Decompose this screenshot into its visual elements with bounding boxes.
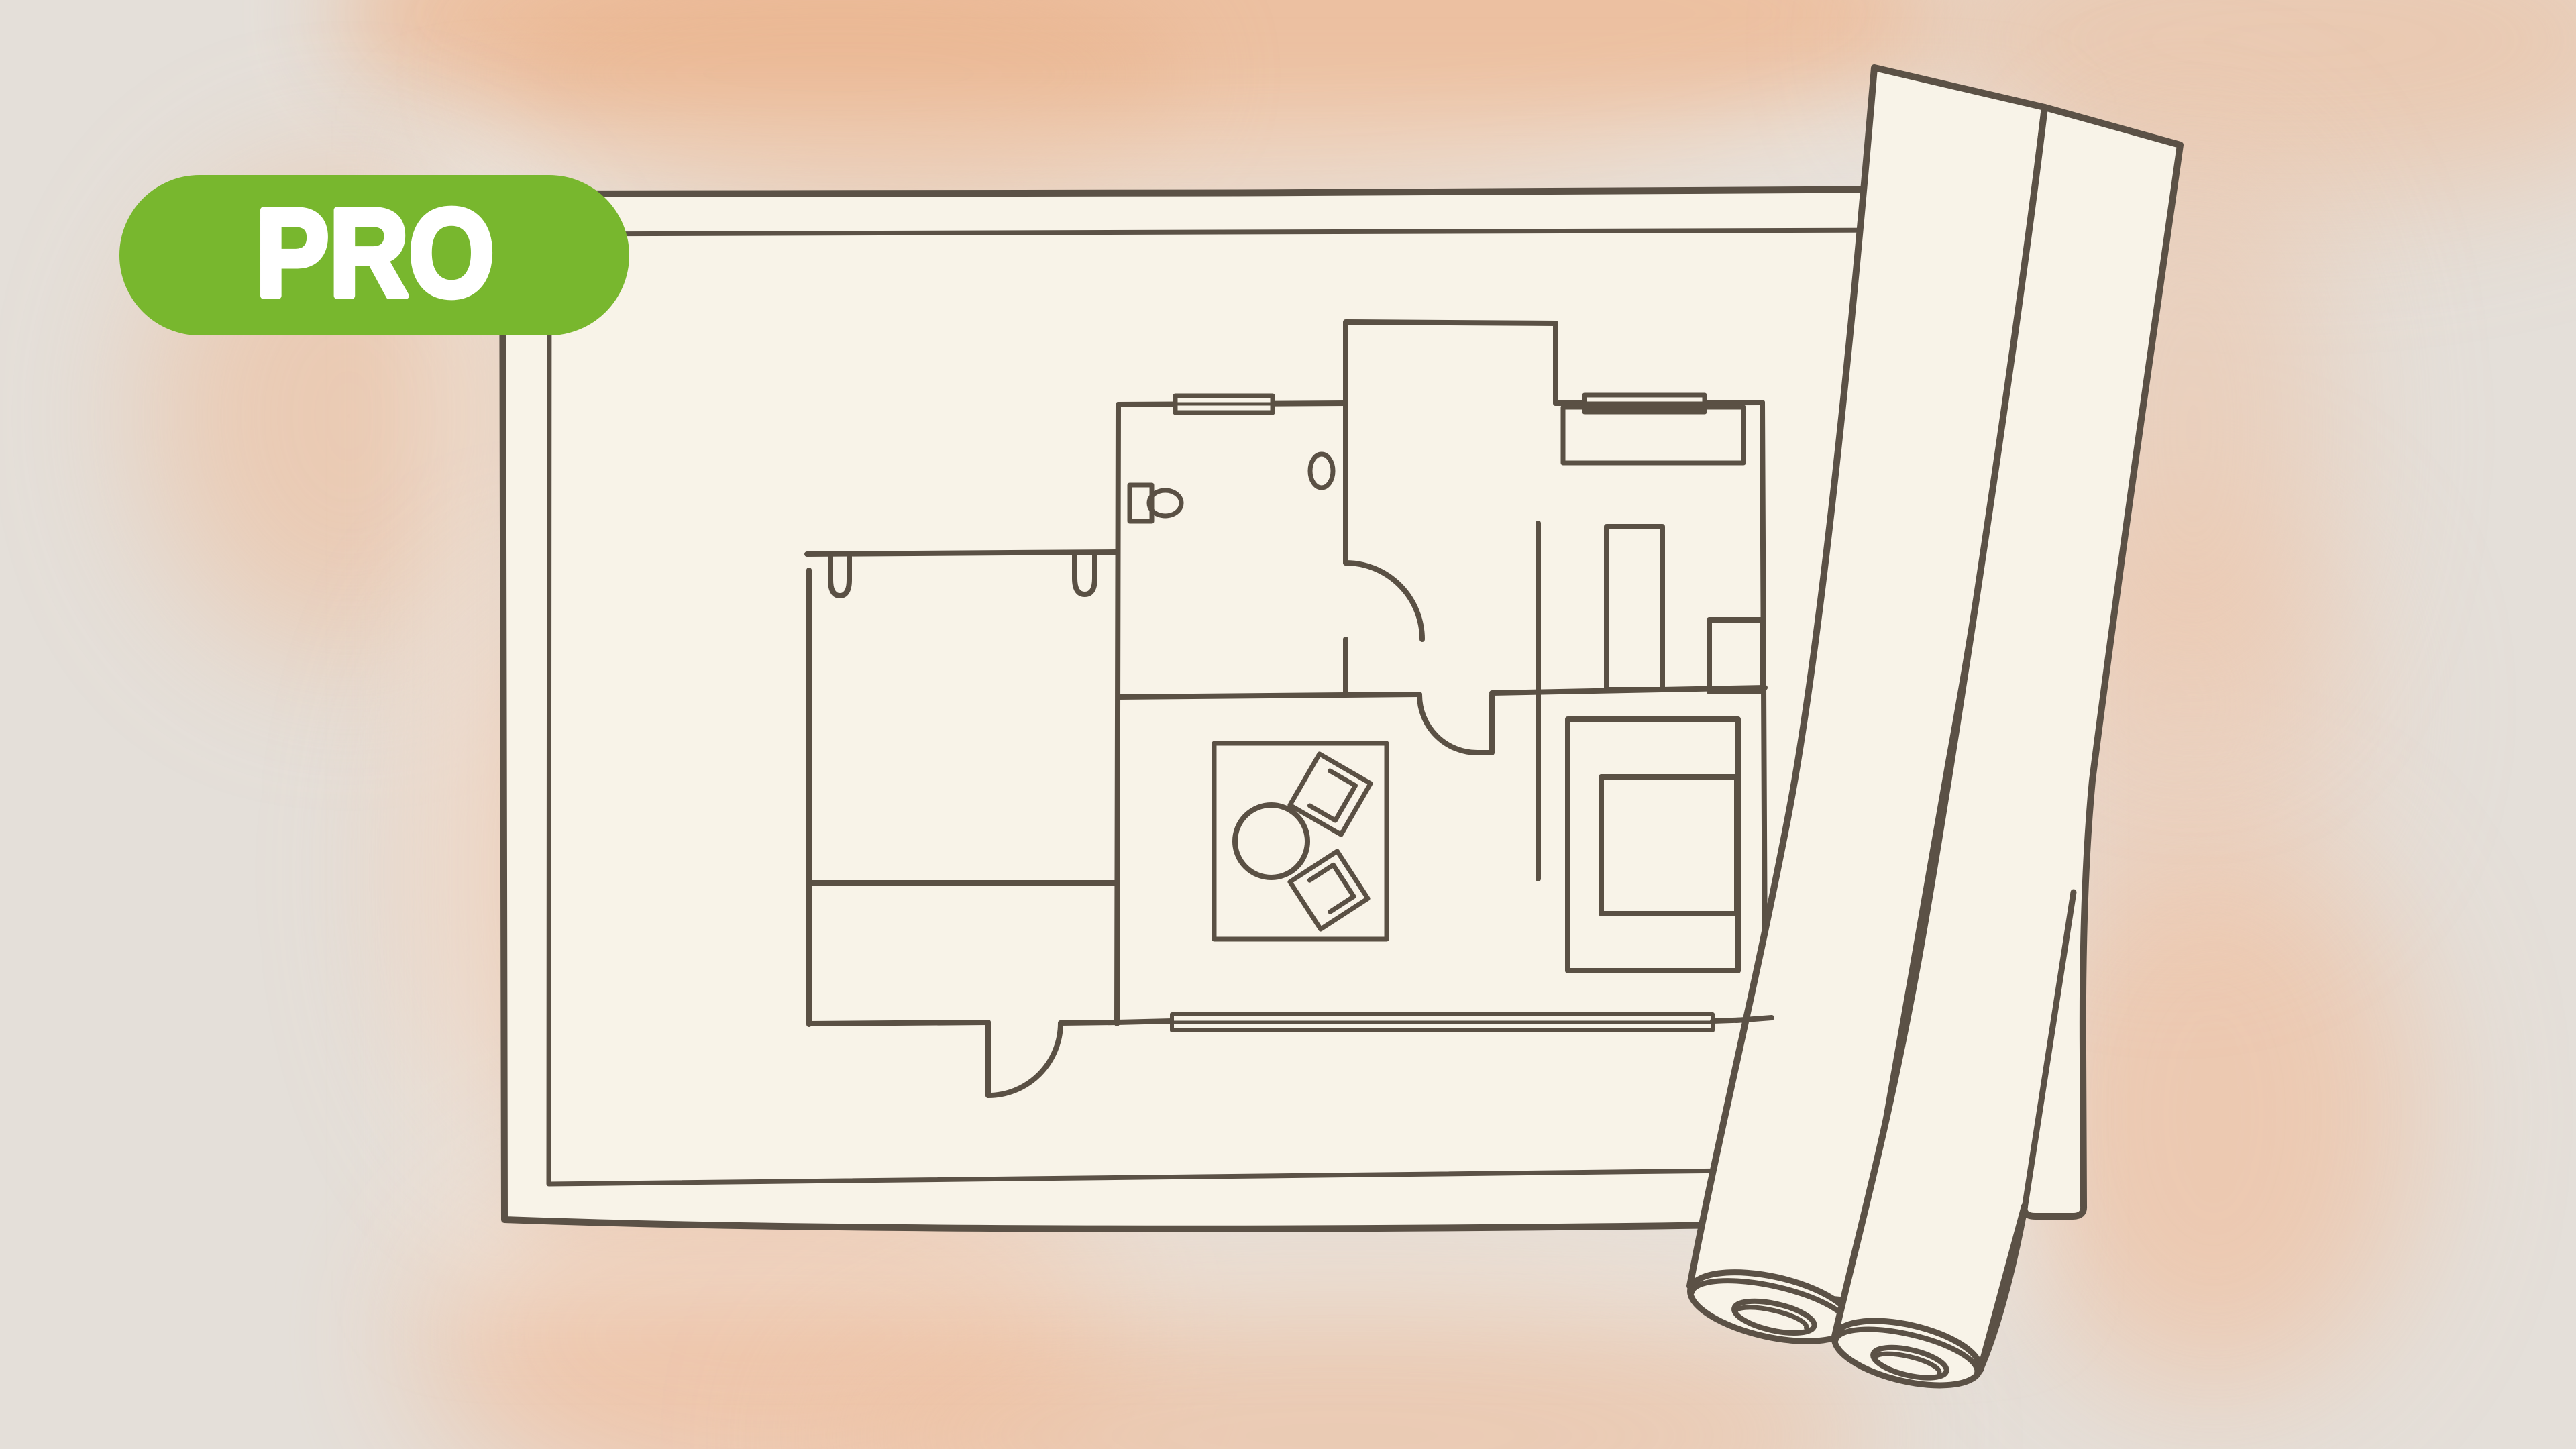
svg-text:PRO: PRO bbox=[256, 184, 494, 323]
